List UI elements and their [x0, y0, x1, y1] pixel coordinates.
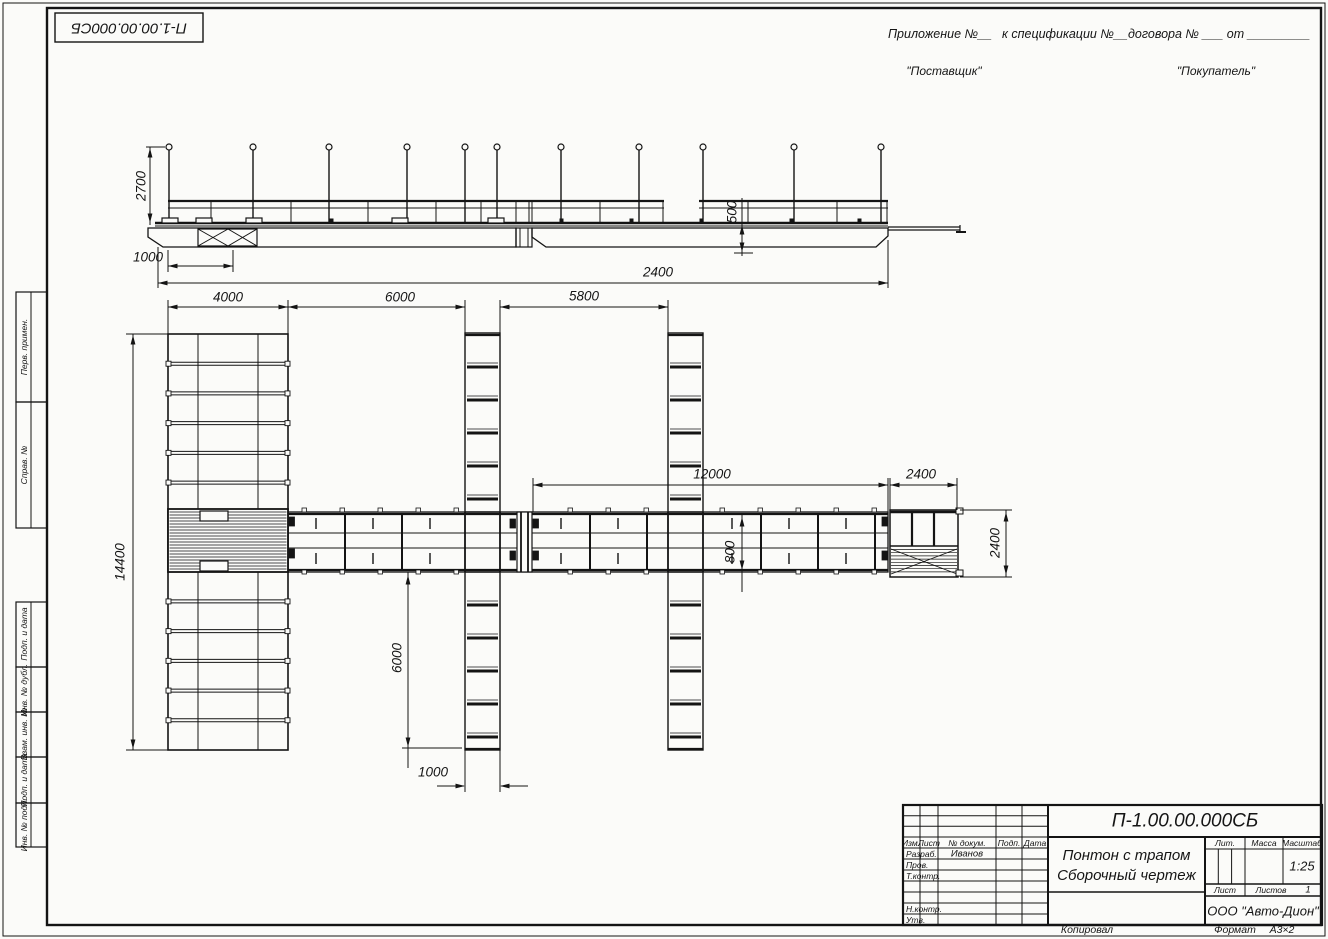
tb-title-line2: Сборочный чертеж: [1057, 867, 1196, 884]
tb-label-utv: Утв.: [906, 916, 925, 925]
tb-label-list2: Лист: [1214, 886, 1236, 895]
dim-plan-gap-2: 5800: [569, 289, 599, 303]
dim-plan-gap-1: 6000: [385, 290, 415, 304]
tb-sheets-value: 1: [1305, 885, 1310, 895]
title-block-doc-number: П-1.00.00.000СБ: [1112, 812, 1259, 831]
tb-scale-value: 1:25: [1289, 860, 1314, 873]
tb-label-massa: Масса: [1251, 839, 1276, 848]
side-view: [148, 144, 966, 247]
dim-plan-finger-width: 1000: [418, 765, 448, 779]
tb-label-n-dokum: № докум.: [948, 839, 985, 848]
tb-label-n-kontr: Н.контр.: [906, 905, 942, 914]
tb-label-listov: Листов: [1256, 886, 1287, 895]
tb-label-data: Дата: [1024, 839, 1046, 848]
tb-developer-name: Иванов: [951, 849, 983, 859]
format-value: А3×2: [1270, 925, 1295, 936]
margin-field-inv-podl: Инв. № подл.: [20, 799, 29, 852]
tb-label-razrab: Разраб.: [906, 850, 937, 859]
tb-label-t-kontr: Т.контр.: [906, 872, 940, 881]
tb-label-masshtab: Масштаб: [1282, 839, 1322, 848]
tb-title-line1: Понтон с трапом: [1063, 847, 1191, 864]
format-label: Формат: [1214, 925, 1256, 936]
dim-side-freeboard: 500: [725, 201, 739, 224]
margin-field-perv-primen: Перв. примен.: [20, 319, 29, 376]
dim-plan-left-module-height: 14400: [113, 543, 127, 581]
appendix-text-2: к спецификации №__: [1002, 28, 1128, 41]
dim-side-left-offset: 1000: [133, 250, 163, 264]
dim-side-mast-height: 2700: [134, 171, 148, 201]
sheet-frame: [3, 3, 1325, 936]
dim-plan-walkway-length: 12000: [693, 467, 731, 481]
margin-field-podp-data-1: Подп. и дата: [20, 607, 29, 660]
dim-plan-left-module-width: 4000: [213, 290, 243, 304]
dim-plan-finger-length: 6000: [390, 643, 404, 673]
plan-view: [166, 333, 963, 750]
margin-field-vzam-inv: Взам. инв. №: [20, 708, 29, 761]
appendix-text-1: Приложение №__: [888, 28, 992, 41]
stamp-doc-number: П-1.00.00.000СБ: [71, 21, 187, 36]
tb-label-lit: Лит.: [1215, 839, 1235, 848]
tb-label-list: Лист: [918, 839, 940, 848]
dim-plan-ramp-height: 2400: [988, 528, 1002, 558]
dim-side-overall: 2400: [643, 265, 673, 279]
margin-field-sprav-no: Справ. №: [20, 446, 29, 485]
tb-drawing-title: Понтон с трапом Сборочный чертеж: [1050, 842, 1203, 888]
drawing-canvas: [0, 0, 1328, 939]
supplier-label: "Поставщик": [906, 65, 981, 77]
copied-label: Копировал: [1061, 925, 1113, 936]
dim-plan-walkway-width: 800: [723, 541, 737, 564]
buyer-label: "Покупатель": [1177, 65, 1255, 77]
tb-company: ООО "Авто-Дион": [1207, 905, 1319, 918]
drawing-sheet: П-1.00.00.000СБ Приложение №__ к специфи…: [0, 0, 1328, 939]
tb-label-podp: Подп.: [998, 839, 1021, 848]
dim-plan-ramp-width: 2400: [906, 467, 936, 481]
appendix-text-3: договора № ___ от _________: [1128, 28, 1310, 41]
tb-label-prov: Пров.: [906, 861, 928, 870]
